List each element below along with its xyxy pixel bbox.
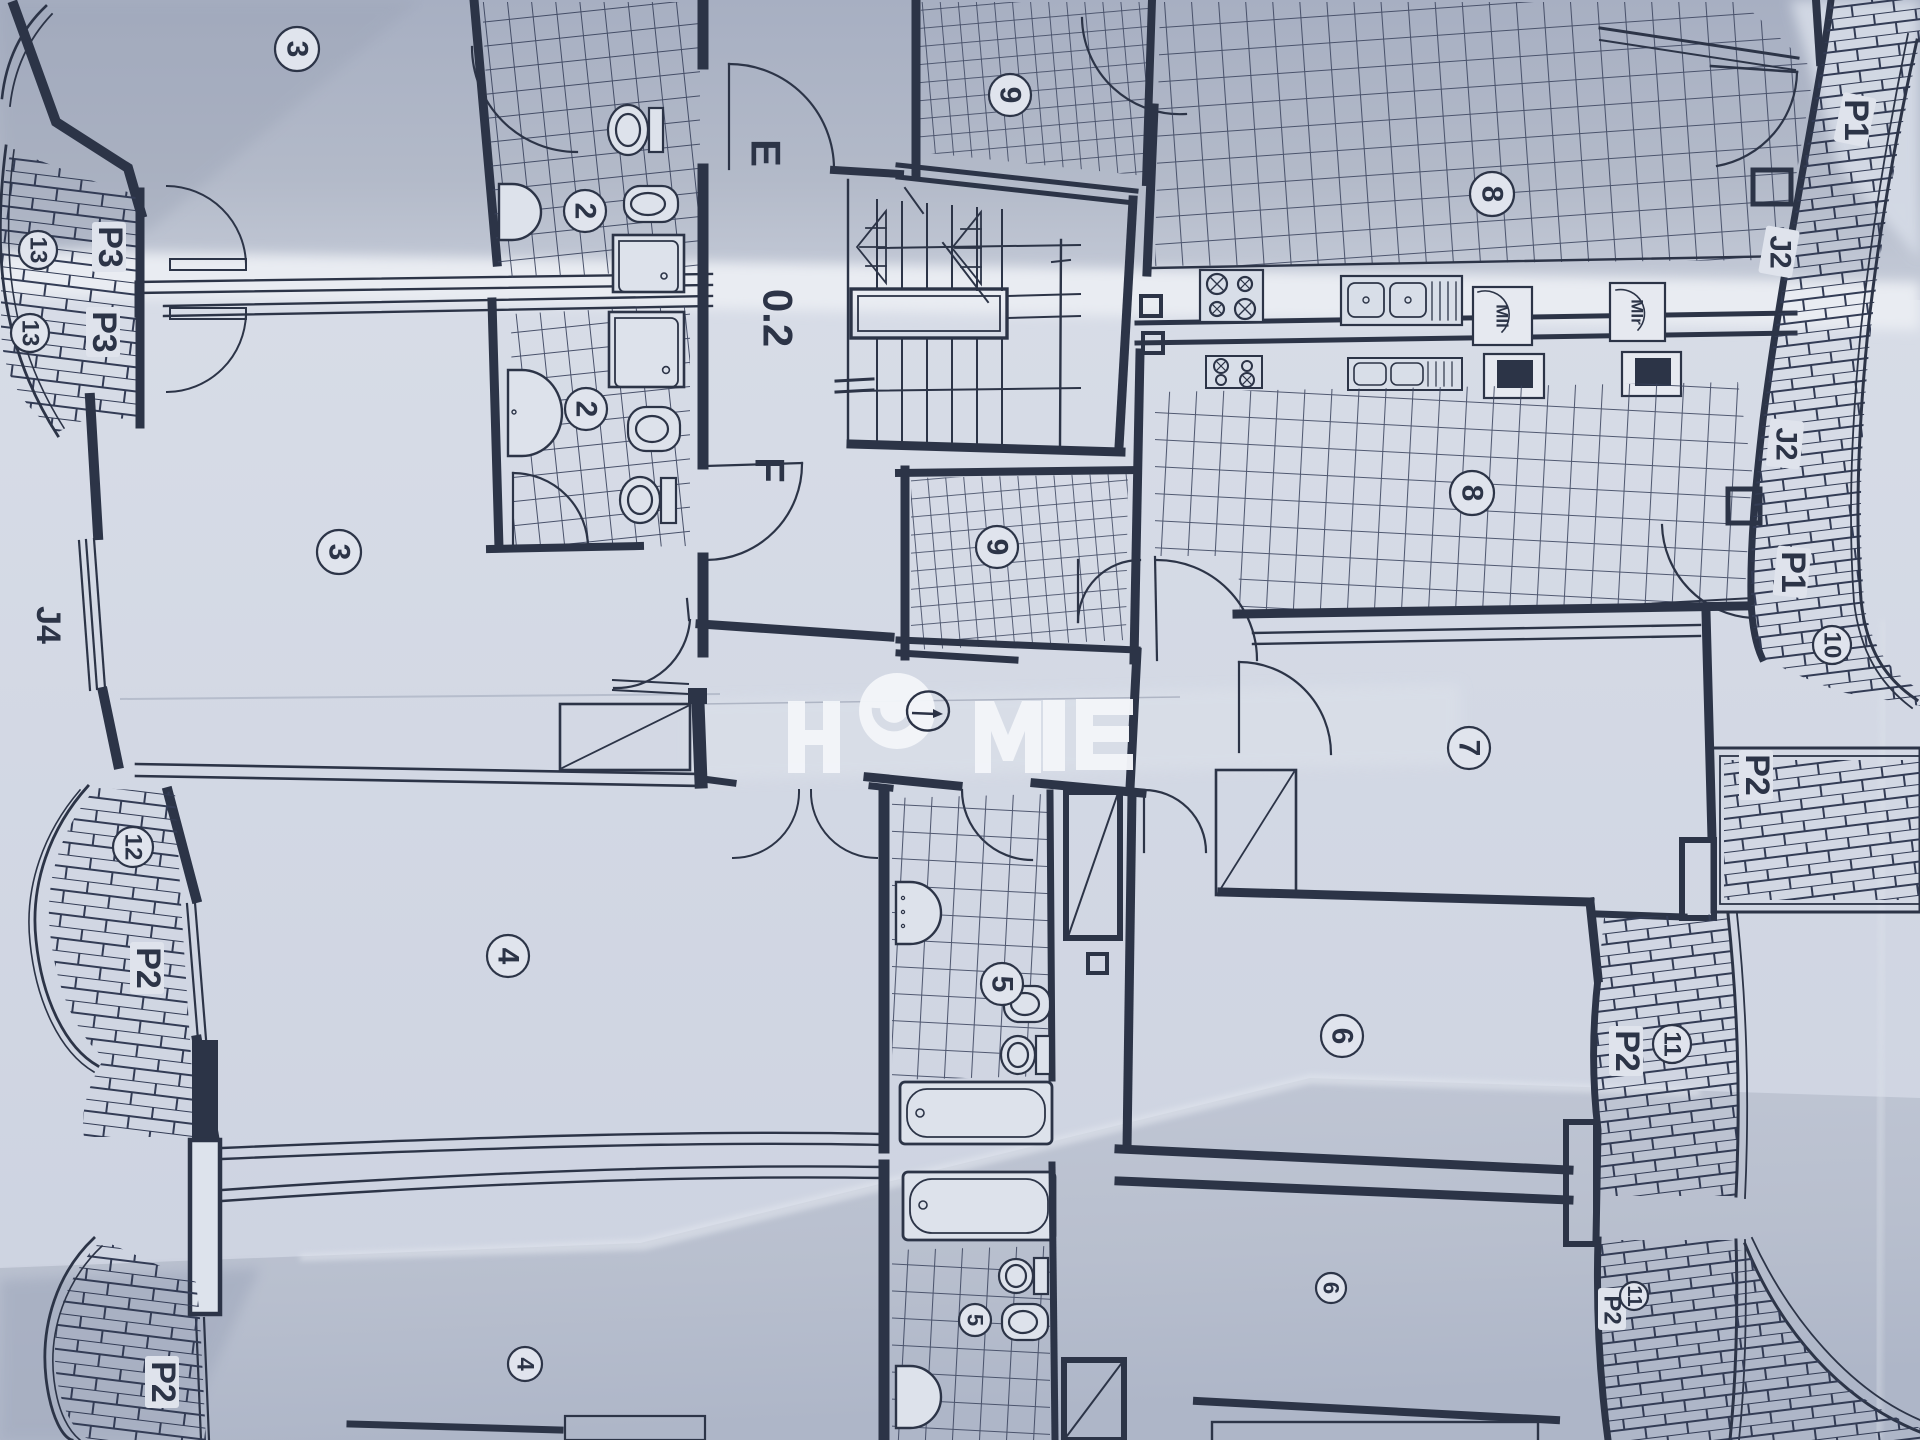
- svg-text:3: 3: [323, 544, 356, 561]
- svg-text:5: 5: [963, 1314, 988, 1326]
- svg-text:6: 6: [1319, 1282, 1344, 1294]
- svg-text:9: 9: [981, 539, 1014, 556]
- svg-text:4: 4: [512, 1357, 539, 1371]
- svg-text:7: 7: [1453, 740, 1486, 757]
- svg-text:MIr: MIr: [1628, 299, 1647, 325]
- svg-text:P2: P2: [1599, 1295, 1626, 1324]
- svg-text:11: 11: [1659, 1031, 1686, 1056]
- svg-text:2: 2: [569, 203, 602, 220]
- svg-text:P3: P3: [85, 311, 123, 353]
- svg-text:E: E: [743, 139, 790, 167]
- svg-text:0.2: 0.2: [755, 289, 802, 347]
- svg-text:F: F: [747, 457, 794, 483]
- svg-text:10: 10: [1819, 632, 1846, 659]
- svg-text:13: 13: [25, 237, 52, 264]
- svg-text:P2: P2: [129, 947, 167, 989]
- svg-text:9: 9: [994, 87, 1027, 104]
- svg-text:8: 8: [1456, 485, 1489, 502]
- svg-text:P2: P2: [1738, 754, 1776, 796]
- svg-text:6: 6: [1326, 1028, 1359, 1045]
- svg-text:J4: J4: [29, 606, 67, 644]
- svg-text:4: 4: [492, 948, 525, 965]
- svg-text:MIl: MIl: [1493, 304, 1512, 328]
- svg-text:13: 13: [17, 320, 44, 347]
- svg-text:J2: J2: [1764, 235, 1797, 268]
- svg-text:P1: P1: [1837, 99, 1875, 141]
- svg-text:J2: J2: [1770, 427, 1803, 460]
- svg-text:2: 2: [570, 401, 603, 418]
- svg-text:P2: P2: [1608, 1030, 1646, 1072]
- svg-text:8: 8: [1476, 186, 1509, 203]
- svg-text:5: 5: [986, 976, 1019, 993]
- svg-text:12: 12: [120, 834, 147, 861]
- svg-text:P2: P2: [144, 1361, 182, 1403]
- svg-text:3: 3: [281, 41, 314, 58]
- svg-text:P3: P3: [91, 226, 129, 268]
- svg-text:P1: P1: [1774, 551, 1812, 593]
